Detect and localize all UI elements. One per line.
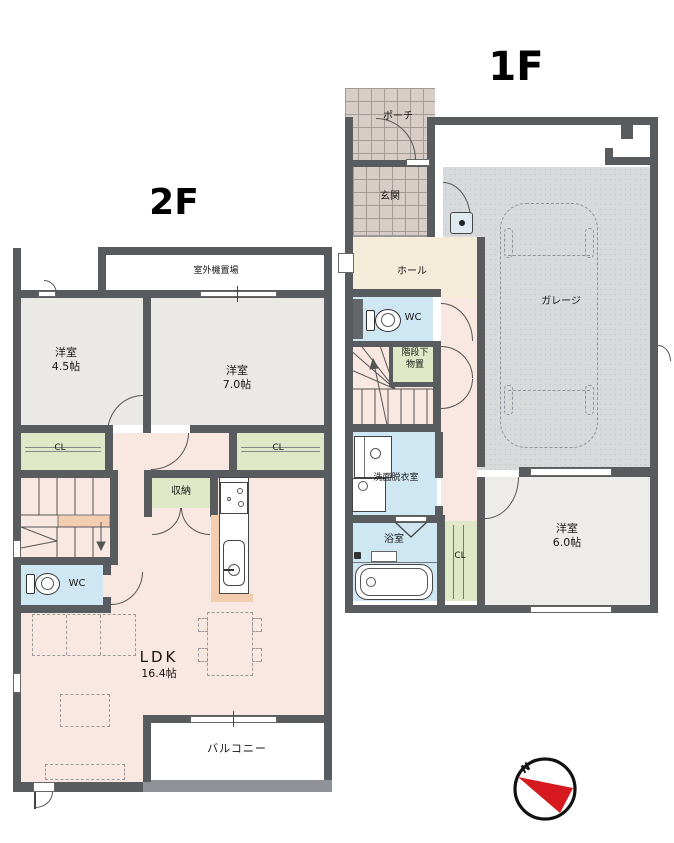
washing-machine-drum	[370, 448, 381, 459]
f1-wall	[477, 477, 485, 605]
floorplan-canvas: 1F	[0, 0, 674, 843]
window	[200, 291, 277, 297]
dining-table-outline	[207, 612, 253, 676]
floor1-title: 1F	[488, 44, 543, 90]
f2-bedroom1-label: 洋室 4.5帖	[52, 346, 81, 375]
floor2-title: 2F	[149, 182, 199, 223]
f2-wall	[324, 247, 332, 792]
f2-wc-label: WC	[69, 578, 86, 590]
dining-chair	[252, 618, 262, 632]
hall-label: ホール	[397, 266, 427, 278]
entrance-step-line	[353, 235, 427, 237]
f1-closet-label: CL	[454, 551, 465, 562]
stove	[220, 482, 248, 514]
entrance-label: 玄関	[380, 191, 400, 203]
ldk-label: LDK	[140, 648, 179, 666]
f1-bedroom-label: 洋室 6.0帖	[553, 522, 582, 551]
car-wheel	[504, 228, 513, 258]
understair-storage-label: 階段下 物置	[401, 348, 428, 371]
f2-entry-door-swing	[35, 792, 53, 808]
bath-step	[371, 551, 397, 562]
dining-chair	[198, 648, 208, 662]
f1-wall	[427, 117, 435, 237]
f1-wall	[389, 343, 441, 347]
kitchen-counter-edge	[211, 515, 219, 602]
f2-wall	[103, 565, 111, 575]
f2-bedroom2-floor	[151, 298, 324, 425]
f1-wall	[437, 523, 445, 605]
ldk-size-label: 16.4帖	[141, 667, 177, 680]
f1-wall	[435, 117, 658, 125]
car-windshield-line	[508, 255, 590, 256]
tv-board-outline	[45, 764, 125, 780]
washroom-label: 洗面脱衣室	[373, 473, 418, 484]
sofa-cushion-line	[100, 615, 101, 655]
car-outline	[500, 203, 598, 448]
garage-side-door-swing	[658, 345, 671, 361]
bath-faucet-dot	[354, 552, 361, 559]
f2-closet-left-label: CL	[54, 443, 65, 454]
f1-wall	[477, 237, 485, 467]
vanity-bowl	[358, 481, 368, 491]
window	[530, 606, 612, 613]
f2-entry-door-leaf	[34, 792, 36, 809]
f2-entry-threshold	[33, 782, 55, 792]
balcony-label: バルコニー	[207, 742, 267, 755]
window-center-tick	[233, 711, 234, 727]
f1-toilet-bowl-inner	[381, 313, 395, 327]
f1-closet-track	[453, 525, 454, 599]
equipment-dot	[459, 220, 465, 226]
f2-wall	[143, 715, 151, 782]
f1-wall	[345, 117, 353, 613]
bath-divider	[353, 562, 437, 563]
window	[13, 673, 21, 693]
f2-wall	[143, 298, 151, 433]
f1-closet-track	[463, 525, 464, 599]
f2-wall	[13, 605, 111, 613]
burner	[238, 501, 244, 507]
sink-faucet-spout	[224, 569, 234, 571]
f1-wall	[345, 289, 441, 297]
f2-wall	[13, 248, 21, 792]
window	[338, 253, 354, 273]
kitchen-sink	[223, 540, 245, 586]
f2-wall	[190, 425, 324, 433]
f2-wall	[13, 290, 332, 298]
bathroom-label: 浴室	[384, 534, 404, 546]
f2-wall	[98, 247, 332, 255]
sofa-outline	[32, 614, 136, 656]
f2-wall	[110, 470, 118, 565]
f1-wall	[605, 157, 658, 165]
front-door-threshold	[406, 159, 430, 166]
outdoor-unit-label: 室外機置場	[193, 266, 238, 277]
f2-closet-right-label: CL	[272, 443, 283, 454]
f2-toilet-tank	[26, 574, 35, 594]
window	[13, 540, 21, 558]
garage-label: ガレージ	[541, 296, 581, 308]
f1-wall	[621, 125, 633, 139]
balcony-outer-band	[143, 780, 332, 792]
dining-chair	[198, 618, 208, 632]
f2-wall	[13, 557, 118, 565]
car-wheel	[585, 228, 594, 258]
coffee-table-outline	[60, 694, 110, 727]
sofa-cushion-line	[66, 615, 67, 655]
compass-icon: N	[511, 755, 579, 823]
washing-machine-divider	[364, 437, 365, 477]
f1-wall	[650, 117, 658, 613]
window-center-tick	[237, 286, 238, 302]
f1-toilet-tank	[366, 310, 375, 331]
bathtub-drain	[366, 577, 376, 587]
f1-wall	[389, 382, 441, 387]
f2-wall	[210, 478, 218, 517]
f1-wall	[345, 424, 441, 432]
outdoor-unit-door-swing	[44, 280, 57, 294]
f2-stairs-treads	[21, 478, 110, 557]
f1-wall	[435, 432, 443, 478]
f1-wall	[605, 148, 613, 157]
window	[530, 468, 612, 476]
f1-wall	[389, 343, 393, 387]
f2-wall	[21, 425, 105, 433]
burner	[237, 488, 243, 494]
car-wheel	[585, 385, 594, 415]
f2-wall	[144, 478, 152, 517]
porch-label: ポーチ	[383, 111, 413, 123]
car-rear-line	[508, 390, 590, 391]
dining-chair	[252, 648, 262, 662]
car-wheel	[504, 385, 513, 415]
f2-storage-label: 収納	[171, 486, 191, 498]
f2-bedroom2-label: 洋室 7.0帖	[223, 364, 252, 393]
f2-toilet-bowl-inner	[41, 577, 54, 590]
burner	[227, 497, 231, 501]
f2-wall	[13, 470, 110, 478]
f1-wc-label: WC	[405, 312, 422, 324]
kitchen-counter-edge	[211, 594, 253, 602]
